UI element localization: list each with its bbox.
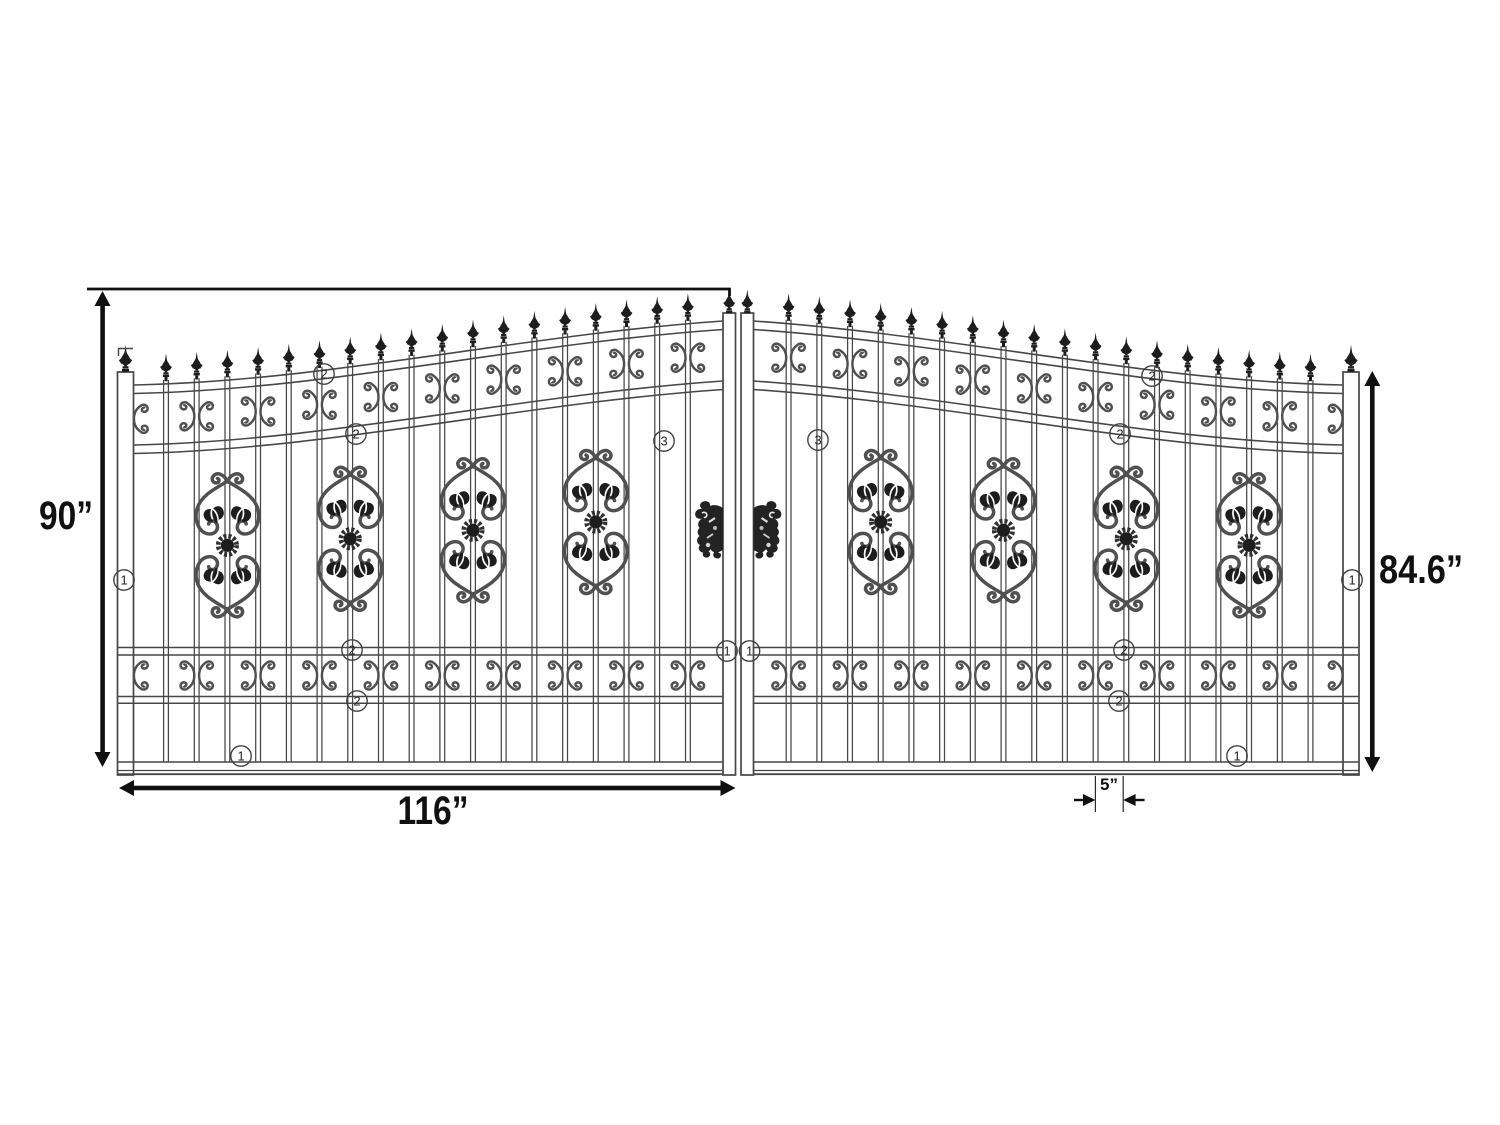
svg-text:1: 1 — [120, 573, 127, 588]
svg-text:2: 2 — [352, 427, 359, 442]
svg-text:2: 2 — [320, 367, 327, 382]
svg-text:1: 1 — [237, 749, 244, 764]
svg-text:90”: 90” — [39, 494, 93, 538]
svg-text:3: 3 — [814, 433, 821, 448]
svg-text:2: 2 — [348, 643, 355, 658]
svg-text:2: 2 — [1120, 643, 1127, 658]
svg-text:2: 2 — [1115, 694, 1122, 709]
svg-text:116”: 116” — [398, 789, 469, 833]
svg-text:2: 2 — [353, 694, 360, 709]
svg-text:2: 2 — [1116, 427, 1123, 442]
svg-text:2: 2 — [1148, 369, 1155, 384]
svg-text:1: 1 — [1348, 573, 1355, 588]
svg-text:1: 1 — [1233, 749, 1240, 764]
svg-text:5”: 5” — [1100, 775, 1118, 794]
svg-text:3: 3 — [660, 434, 667, 449]
svg-text:1: 1 — [746, 644, 753, 659]
svg-text:84.6”: 84.6” — [1379, 548, 1463, 592]
svg-text:1: 1 — [723, 644, 730, 659]
